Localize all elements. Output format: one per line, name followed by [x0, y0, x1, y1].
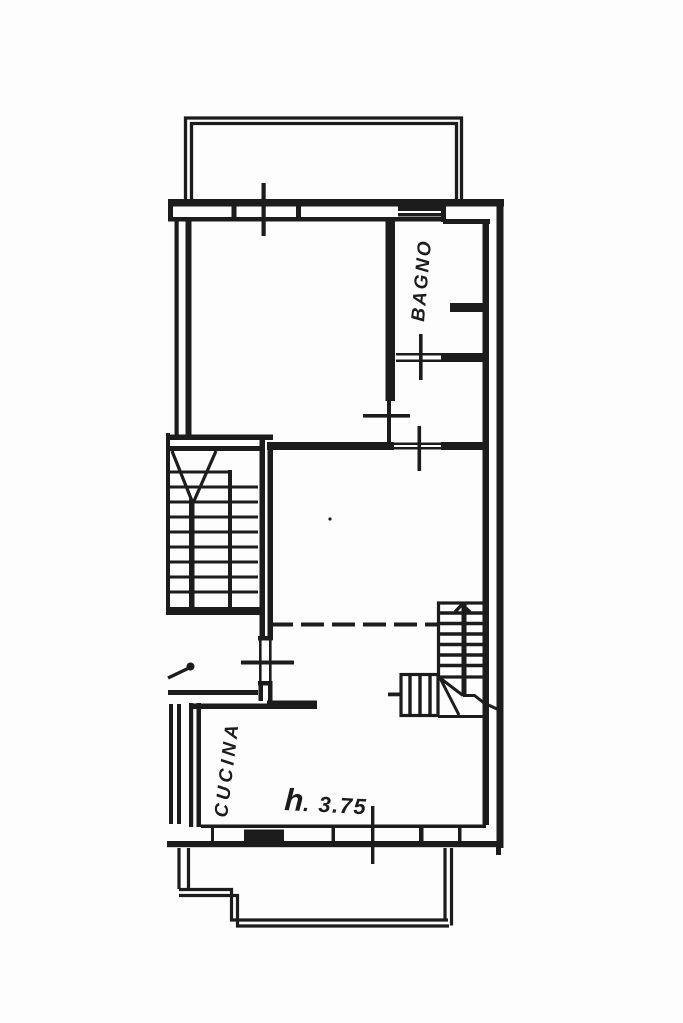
svg-text:BAGNO: BAGNO: [408, 238, 436, 322]
svg-text:h. 3.75: h. 3.75: [284, 782, 369, 821]
svg-text:CUCINA: CUCINA: [211, 720, 244, 819]
